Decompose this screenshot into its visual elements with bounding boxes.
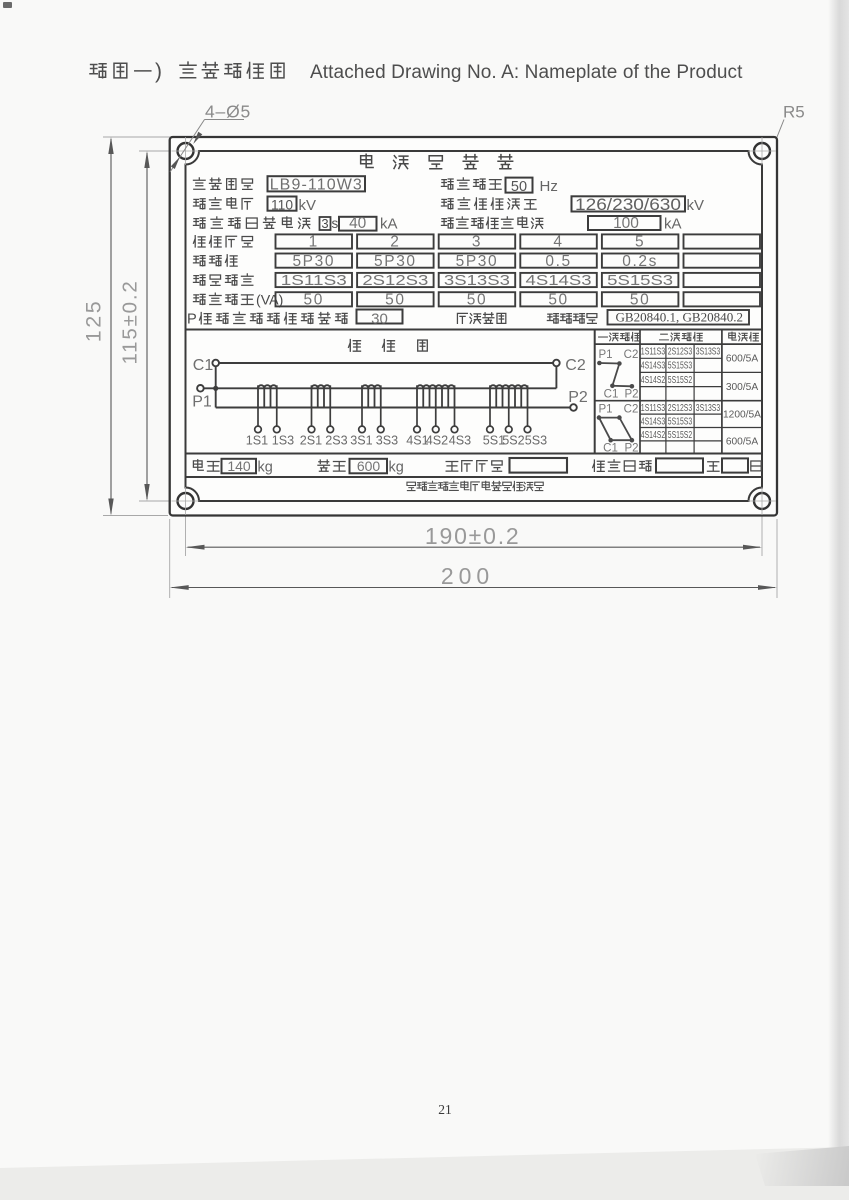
svg-text:4S3: 4S3 — [449, 434, 471, 448]
svg-text:5S15S2: 5S15S2 — [668, 375, 692, 386]
svg-text:4S2: 4S2 — [426, 434, 448, 448]
svg-text:0.5: 0.5 — [545, 253, 571, 270]
svg-text:C1: C1 — [604, 389, 619, 401]
svg-text:4S14S3: 4S14S3 — [641, 416, 666, 427]
svg-text:600/5A: 600/5A — [726, 437, 758, 448]
svg-text:40: 40 — [349, 215, 367, 232]
svg-text:LB9-110W3: LB9-110W3 — [270, 177, 363, 194]
svg-text:4: 4 — [553, 234, 563, 251]
svg-text:2S1: 2S1 — [300, 434, 322, 448]
svg-text:3: 3 — [472, 234, 482, 251]
svg-text:C2: C2 — [624, 349, 639, 361]
svg-text:50: 50 — [548, 292, 568, 309]
svg-text:2S12S3: 2S12S3 — [668, 403, 693, 414]
svg-text:Attached Drawing No. A: Namepl: Attached Drawing No. A: Nameplate of the… — [310, 62, 743, 83]
svg-text:5: 5 — [635, 234, 645, 251]
svg-text:4S14S2: 4S14S2 — [641, 375, 665, 386]
svg-text:30: 30 — [371, 310, 388, 327]
svg-text:5S15S2: 5S15S2 — [668, 430, 692, 441]
svg-text:R5: R5 — [783, 103, 805, 122]
svg-text:1S11S3: 1S11S3 — [281, 272, 347, 289]
svg-text:P1: P1 — [598, 349, 612, 361]
svg-text:kg: kg — [258, 460, 273, 476]
svg-text:C2: C2 — [565, 357, 586, 374]
svg-text:P1: P1 — [192, 394, 212, 411]
svg-text:P: P — [187, 312, 197, 328]
svg-text:5P30: 5P30 — [456, 253, 499, 270]
svg-text:300/5A: 300/5A — [726, 382, 758, 393]
svg-text:GB20840.1, GB20840.2: GB20840.1, GB20840.2 — [616, 310, 744, 325]
svg-text:4S14S2: 4S14S2 — [641, 430, 665, 441]
svg-text:2S3: 2S3 — [325, 434, 347, 448]
svg-text:3S13S3: 3S13S3 — [696, 347, 721, 358]
svg-text:1S1: 1S1 — [246, 434, 268, 448]
svg-text:4S14S3: 4S14S3 — [526, 272, 592, 289]
svg-text:5P30: 5P30 — [374, 253, 417, 270]
svg-text:kA: kA — [664, 216, 682, 233]
svg-text:5S15S3: 5S15S3 — [607, 272, 673, 289]
svg-text:C1: C1 — [193, 357, 214, 374]
svg-text:5S2: 5S2 — [502, 434, 524, 448]
svg-text:140: 140 — [227, 458, 251, 474]
svg-text:s: s — [332, 216, 339, 231]
svg-text:0.2s: 0.2s — [622, 253, 658, 270]
svg-text:Hz: Hz — [540, 178, 558, 195]
svg-text:4–Ø5: 4–Ø5 — [205, 102, 251, 122]
svg-text:5S15S3: 5S15S3 — [668, 361, 693, 372]
svg-text:115±0.2: 115±0.2 — [119, 279, 142, 364]
svg-text:1S11S3: 1S11S3 — [641, 403, 666, 414]
svg-text:C2: C2 — [624, 404, 639, 416]
svg-text:100: 100 — [613, 215, 639, 232]
svg-text:3: 3 — [321, 216, 328, 231]
svg-text:126/230/630: 126/230/630 — [575, 196, 681, 214]
svg-text:600/5A: 600/5A — [726, 354, 758, 365]
svg-text:P2: P2 — [568, 389, 588, 406]
svg-text:2S12S3: 2S12S3 — [668, 347, 693, 358]
svg-text:50: 50 — [304, 292, 324, 309]
svg-text:50: 50 — [511, 179, 527, 195]
svg-text:2S12S3: 2S12S3 — [362, 272, 428, 289]
svg-text:21: 21 — [438, 1102, 452, 1117]
svg-text:5S15S3: 5S15S3 — [668, 416, 693, 427]
svg-text:kV: kV — [687, 197, 705, 214]
svg-text:3S1: 3S1 — [350, 434, 372, 448]
svg-text:1200/5A: 1200/5A — [723, 410, 761, 421]
svg-text:3S13S3: 3S13S3 — [696, 403, 721, 414]
svg-text:50: 50 — [630, 292, 650, 309]
svg-text:P1: P1 — [598, 404, 612, 416]
svg-text:): ) — [155, 60, 162, 83]
svg-text:1S11S3: 1S11S3 — [641, 347, 666, 358]
svg-text:5S3: 5S3 — [525, 434, 547, 448]
svg-text:3S13S3: 3S13S3 — [444, 272, 510, 289]
svg-text:200: 200 — [441, 563, 494, 589]
svg-text:3S3: 3S3 — [376, 434, 398, 448]
svg-text:kV: kV — [299, 197, 317, 214]
svg-text:600: 600 — [357, 458, 381, 474]
svg-text:kA: kA — [380, 216, 398, 233]
svg-text:125: 125 — [82, 299, 106, 342]
svg-text:50: 50 — [467, 292, 487, 309]
svg-text:110: 110 — [271, 198, 293, 213]
svg-text:5P30: 5P30 — [292, 253, 335, 270]
svg-text:1S3: 1S3 — [272, 434, 294, 448]
svg-text:4S14S3: 4S14S3 — [641, 361, 666, 372]
svg-text:P2: P2 — [624, 389, 638, 401]
svg-text:1: 1 — [309, 234, 319, 251]
svg-text:kg: kg — [389, 460, 404, 476]
svg-text:50: 50 — [385, 292, 405, 309]
svg-text:190±0.2: 190±0.2 — [425, 523, 521, 549]
svg-text:2: 2 — [390, 234, 400, 251]
